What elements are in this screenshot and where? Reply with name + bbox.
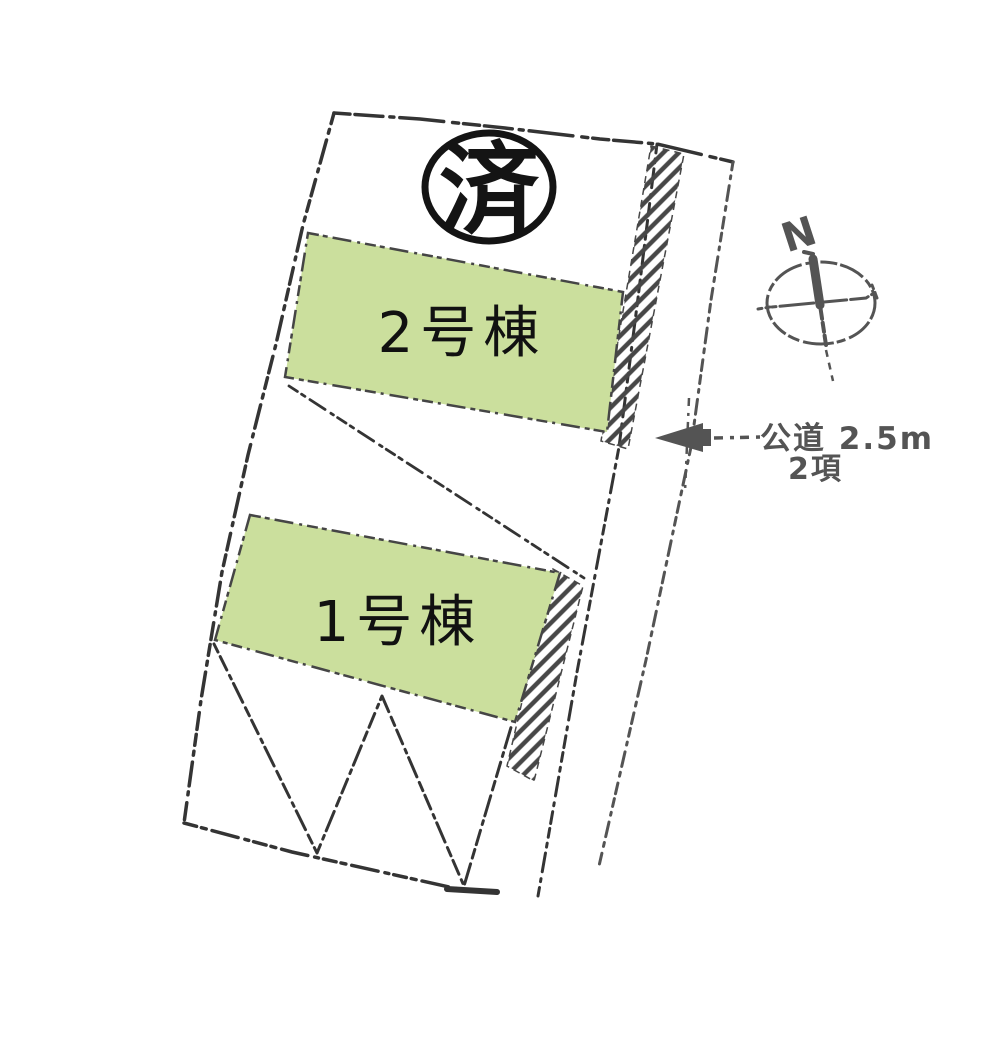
compass-north-tick bbox=[804, 252, 813, 254]
sold-stamp-label: 済 bbox=[439, 132, 540, 249]
road-width-arrow-tail bbox=[700, 429, 711, 446]
site-plan-page: 2号棟 1号棟 済 N 公道 2.5m 2項 bbox=[0, 0, 1000, 1052]
compass-needle bbox=[813, 259, 820, 305]
site-corner-bar bbox=[447, 889, 497, 892]
parcel-1-label: 1号棟 bbox=[314, 590, 483, 655]
compass-north-label: N bbox=[776, 208, 822, 262]
road-width-leader-line bbox=[714, 437, 762, 438]
site-boundary-left-edge bbox=[184, 113, 334, 823]
compass-needle-lower bbox=[820, 305, 826, 345]
parcel-2-label: 2号棟 bbox=[378, 301, 547, 366]
compass-tail bbox=[826, 350, 833, 381]
site-boundary-bottom-edge bbox=[184, 823, 458, 889]
compass-rose: N bbox=[758, 208, 879, 381]
road-type-label: 2項 bbox=[788, 452, 843, 487]
road-width-label: 公道 2.5m bbox=[760, 421, 934, 457]
road-width-arrow-icon bbox=[655, 423, 703, 452]
road-right-edge bbox=[599, 162, 733, 866]
site-plan-svg: 2号棟 1号棟 済 N 公道 2.5m 2項 bbox=[0, 0, 1000, 1052]
